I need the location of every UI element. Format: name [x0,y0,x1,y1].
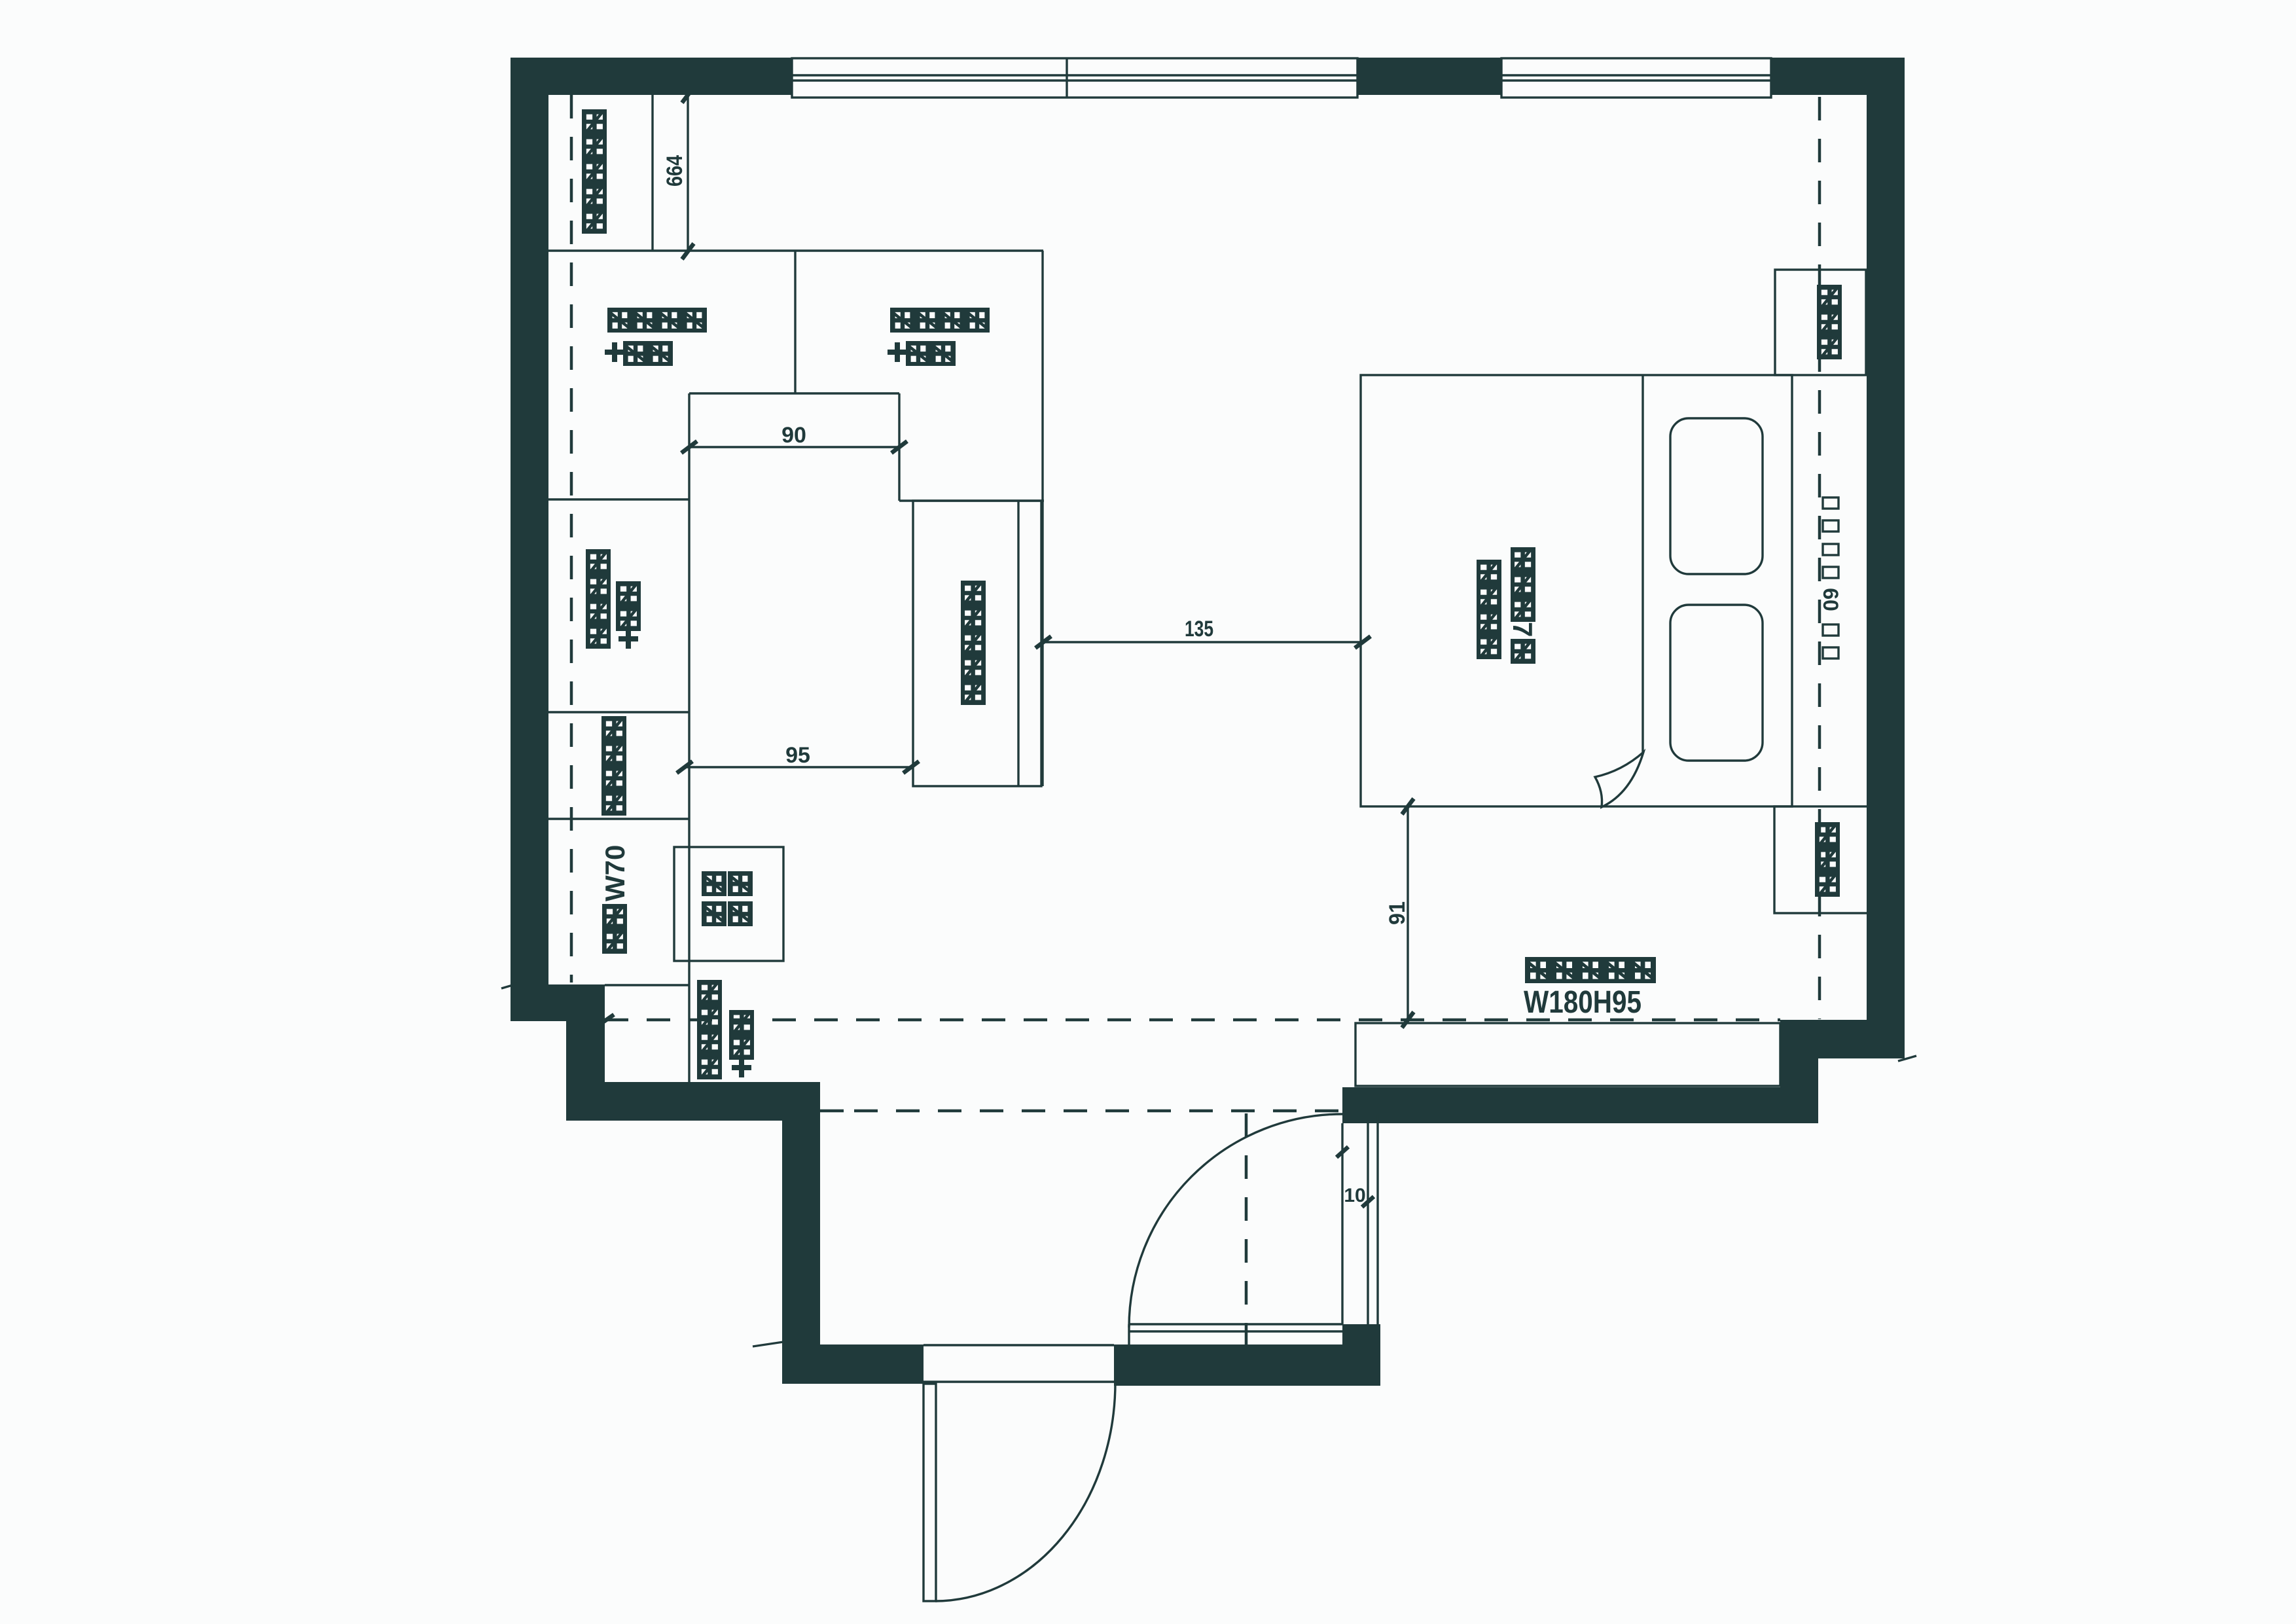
svg-text:W70: W70 [600,845,630,901]
svg-text:90: 90 [781,423,806,448]
svg-text:91: 91 [1385,901,1410,925]
svg-text:135: 135 [1185,617,1213,641]
svg-text:W180H95: W180H95 [1524,985,1641,1020]
svg-text:10: 10 [1344,1185,1365,1206]
svg-text:664: 664 [662,155,687,187]
svg-text:7: 7 [1507,622,1538,637]
svg-text:60: 60 [1819,588,1842,611]
svg-text:95: 95 [785,743,810,768]
